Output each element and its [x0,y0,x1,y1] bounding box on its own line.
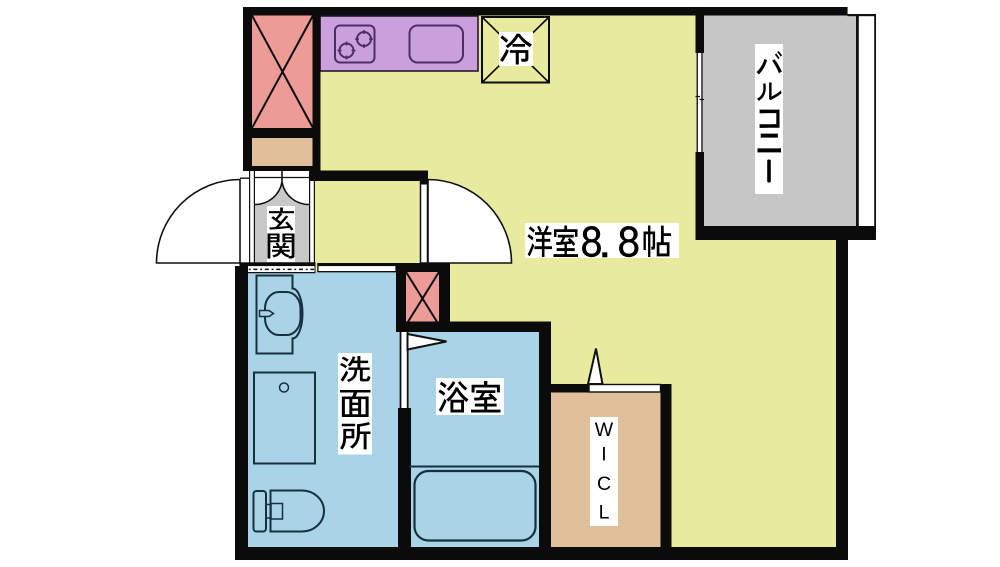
svg-text:C: C [597,473,611,495]
svg-text:L: L [599,502,610,524]
svg-text:W: W [595,419,614,441]
svg-text:I: I [601,444,606,466]
